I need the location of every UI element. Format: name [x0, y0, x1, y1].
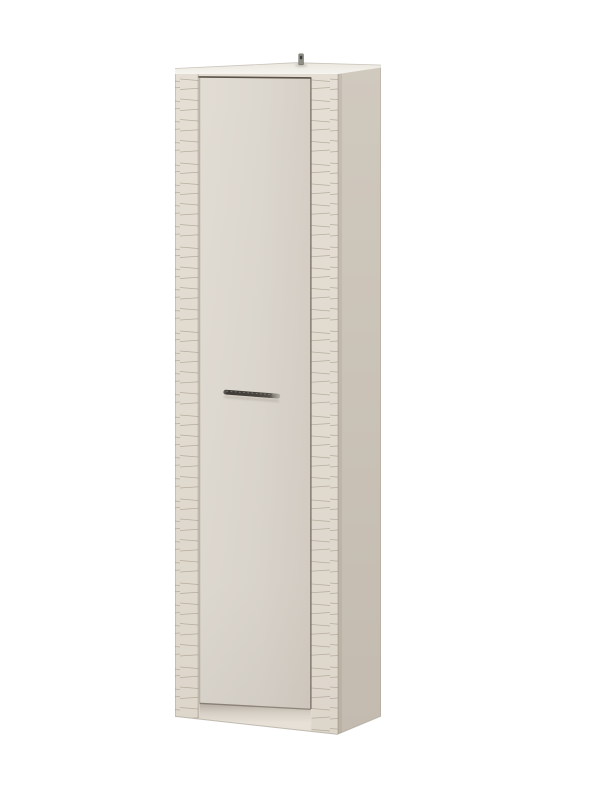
- right-pilaster: [312, 74, 339, 734]
- wardrobe-cabinet-illustration: [0, 0, 601, 800]
- side-corner-shade: [338, 74, 342, 734]
- bracket-hole: [300, 56, 302, 59]
- bracket-plate: [299, 54, 304, 65]
- left-pilaster: [175, 74, 199, 719]
- right-pilaster-grooves: [312, 74, 339, 734]
- side-panel-face: [338, 68, 381, 735]
- left-pilaster-grooves: [175, 74, 199, 719]
- product-photo: Tall narrow single-door wardrobe cabinet…: [0, 0, 601, 800]
- door: [199, 77, 312, 709]
- door-top-gap: [199, 77, 312, 78]
- side-panel: [338, 68, 381, 735]
